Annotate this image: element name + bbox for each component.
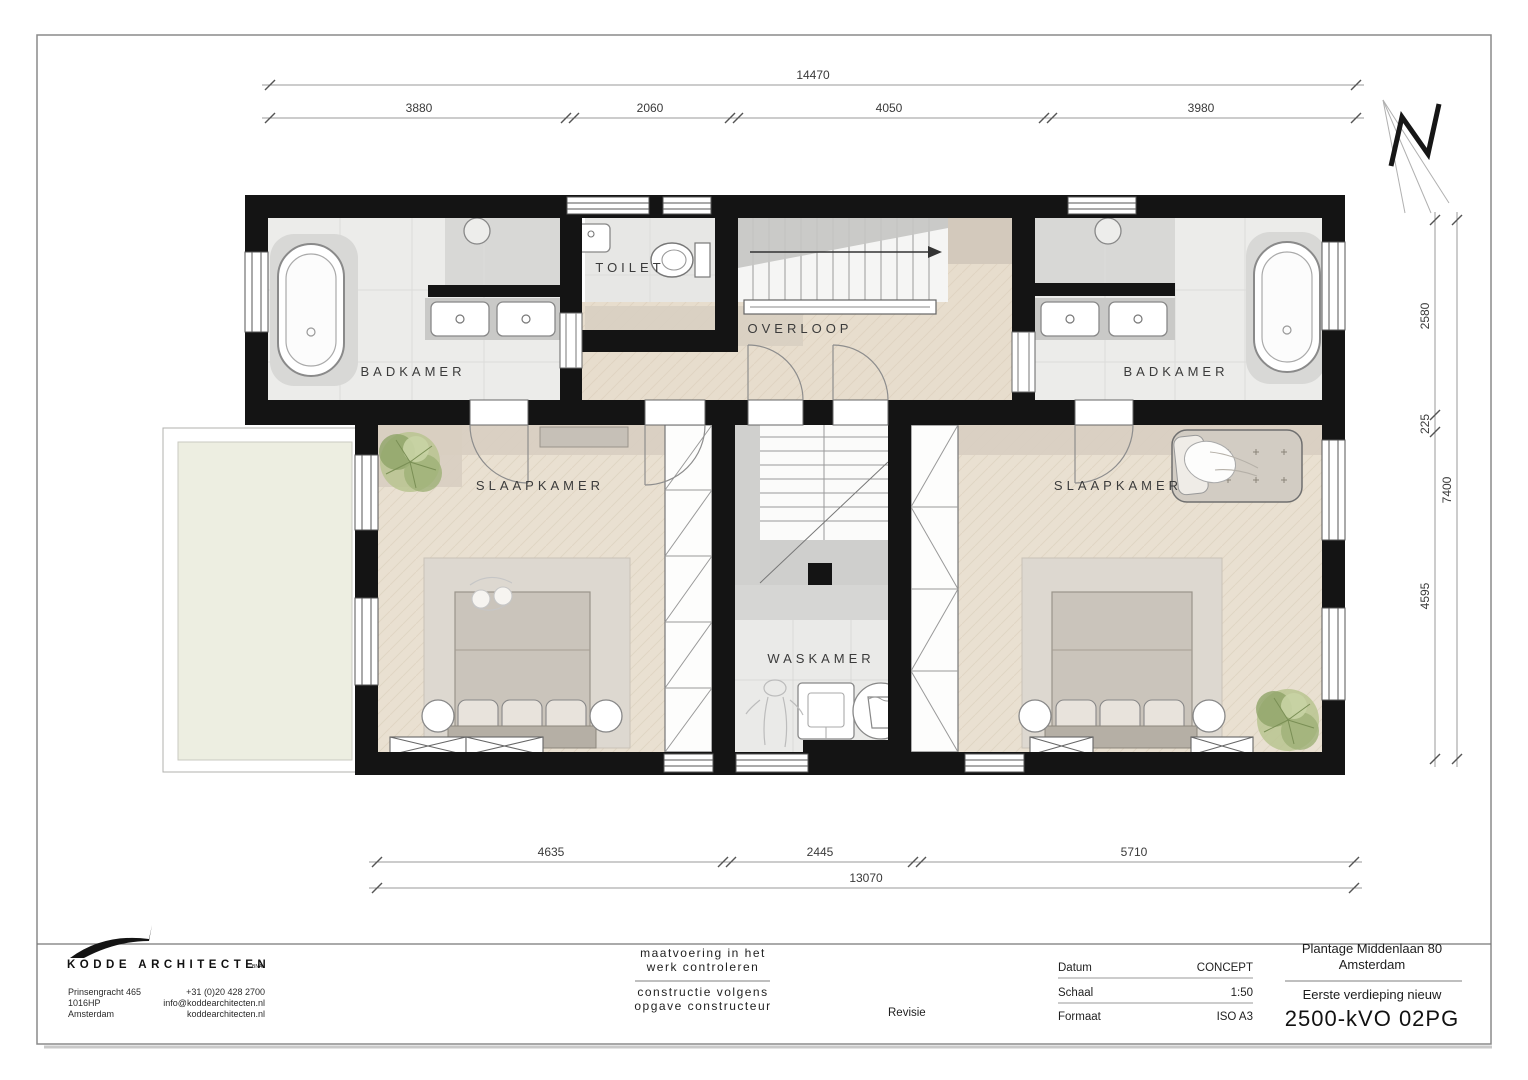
room-label-toilet: TOILET <box>595 260 664 275</box>
svg-text:ISO A3: ISO A3 <box>1217 1011 1253 1023</box>
room-label-badkamer-left: BADKAMER <box>361 364 466 379</box>
floorplan-svg: BADKAMER TOILET OVERLOOP BADKAMER SLAAPK… <box>0 0 1528 1080</box>
svg-text:+31 (0)20 428 2700: +31 (0)20 428 2700 <box>186 987 265 997</box>
project-address1: Plantage Middenlaan 80 <box>1302 941 1442 956</box>
room-label-waskamer: WASKAMER <box>767 651 874 666</box>
terrace <box>163 428 358 772</box>
dim-top-seg4: 3980 <box>1188 101 1215 115</box>
drawing-code: 2500-kVO 02PG <box>1285 1006 1459 1031</box>
bed-left <box>422 558 630 748</box>
washing-machine <box>798 683 854 739</box>
svg-text:1016HP: 1016HP <box>68 998 101 1008</box>
dim-bottom-seg3: 5710 <box>1121 845 1148 859</box>
dim-right-seg2: 225 <box>1418 414 1432 434</box>
daybed <box>1172 430 1302 502</box>
revisie-label: Revisie <box>888 1007 926 1019</box>
svg-text:maatvoering in het: maatvoering in het <box>640 946 766 960</box>
vanity-right <box>1035 298 1175 340</box>
bathtub-left <box>270 234 358 386</box>
svg-text:constructie volgens: constructie volgens <box>637 985 768 999</box>
dim-top-total: 14470 <box>796 68 830 82</box>
svg-text:Schaal: Schaal <box>1058 987 1093 999</box>
room-label-slaapkamer-left: SLAAPKAMER <box>476 478 604 493</box>
bathtub-right <box>1246 232 1326 384</box>
svg-text:koddearchitecten.nl: koddearchitecten.nl <box>187 1009 265 1019</box>
dim-bottom-total: 13070 <box>849 871 883 885</box>
svg-text:1:50: 1:50 <box>1231 987 1253 999</box>
project-address2: Amsterdam <box>1339 957 1405 972</box>
dresser-left <box>540 427 628 447</box>
closet-right <box>911 425 958 752</box>
drawing-title: Eerste verdieping nieuw <box>1303 987 1442 1002</box>
dim-top-seg2: 2060 <box>637 101 664 115</box>
firm-name: KODDE ARCHITECTEN <box>67 959 270 971</box>
svg-text:Formaat: Formaat <box>1058 1011 1102 1023</box>
dim-bottom-seg1: 4635 <box>538 845 565 859</box>
dim-right-total: 7400 <box>1440 476 1454 503</box>
svg-text:Prinsengracht 465: Prinsengracht 465 <box>68 987 141 997</box>
svg-text:Amsterdam: Amsterdam <box>68 1009 114 1019</box>
svg-text:werk controleren: werk controleren <box>646 960 760 974</box>
wardrobe-left <box>665 425 712 752</box>
dim-bottom-seg2: 2445 <box>807 845 834 859</box>
room-label-slaapkamer-right: SLAAPKAMER <box>1054 478 1182 493</box>
svg-text:CONCEPT: CONCEPT <box>1197 962 1253 974</box>
vanity-left <box>425 298 562 340</box>
svg-text:Datum: Datum <box>1058 962 1092 974</box>
room-label-badkamer-right: BADKAMER <box>1124 364 1229 379</box>
firm-suffix: BNA <box>252 964 263 970</box>
dim-right-seg3: 4595 <box>1418 582 1432 609</box>
dim-top-seg1: 3880 <box>406 101 433 115</box>
dim-right-seg1: 2580 <box>1418 302 1432 329</box>
dim-top-seg3: 4050 <box>876 101 903 115</box>
svg-text:opgave constructeur: opgave constructeur <box>634 999 771 1013</box>
stair-secondary <box>735 425 888 585</box>
bed-right <box>1019 558 1225 748</box>
stair-main <box>738 218 948 314</box>
svg-text:info@koddearchitecten.nl: info@koddearchitecten.nl <box>163 998 265 1008</box>
room-label-overloop: OVERLOOP <box>748 321 853 336</box>
drawing-sheet: BADKAMER TOILET OVERLOOP BADKAMER SLAAPK… <box>0 0 1528 1080</box>
